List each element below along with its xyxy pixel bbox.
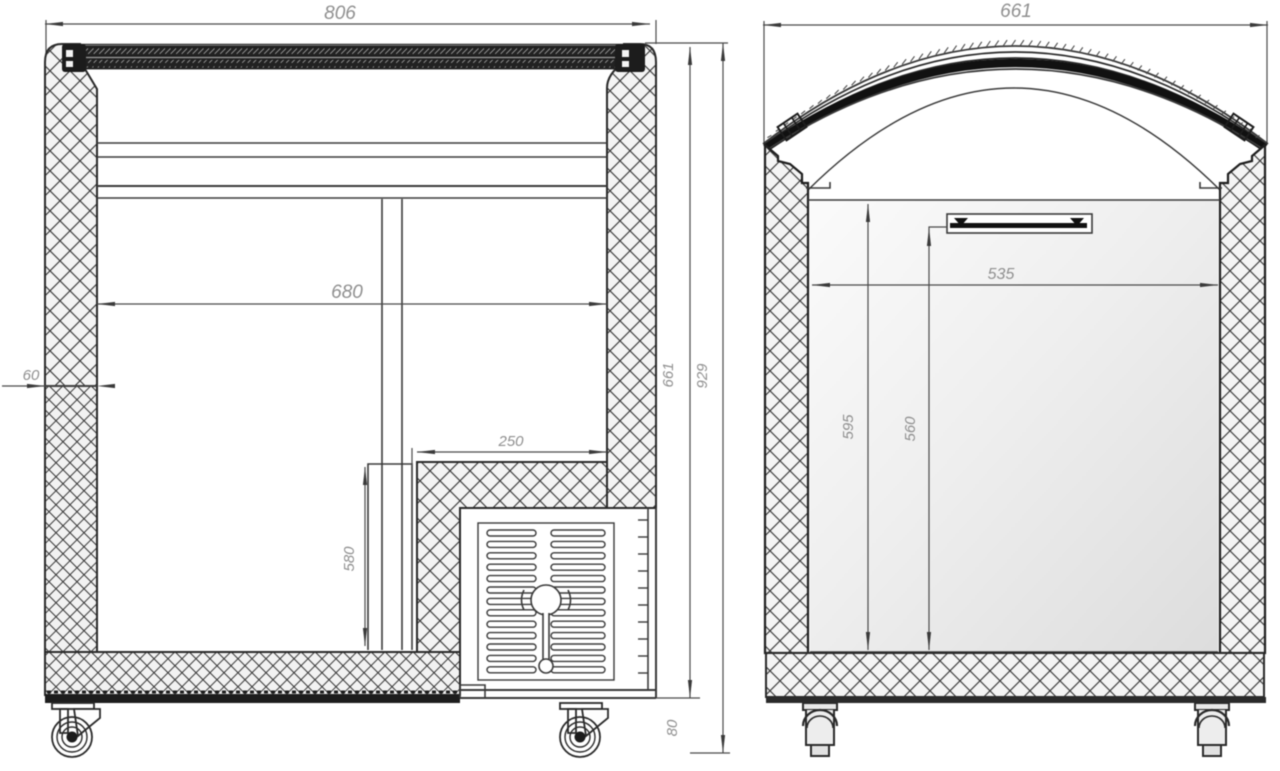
svg-text:929: 929 <box>694 363 711 389</box>
svg-text:580: 580 <box>341 546 358 572</box>
svg-text:535: 535 <box>988 266 1015 283</box>
svg-text:60: 60 <box>23 367 40 384</box>
svg-text:680: 680 <box>331 282 363 303</box>
svg-text:250: 250 <box>497 433 524 450</box>
svg-text:80: 80 <box>664 719 681 736</box>
svg-text:661: 661 <box>660 362 677 387</box>
svg-text:806: 806 <box>324 3 356 24</box>
svg-text:595: 595 <box>840 414 857 440</box>
svg-text:661: 661 <box>1000 1 1032 22</box>
svg-text:560: 560 <box>902 416 919 442</box>
